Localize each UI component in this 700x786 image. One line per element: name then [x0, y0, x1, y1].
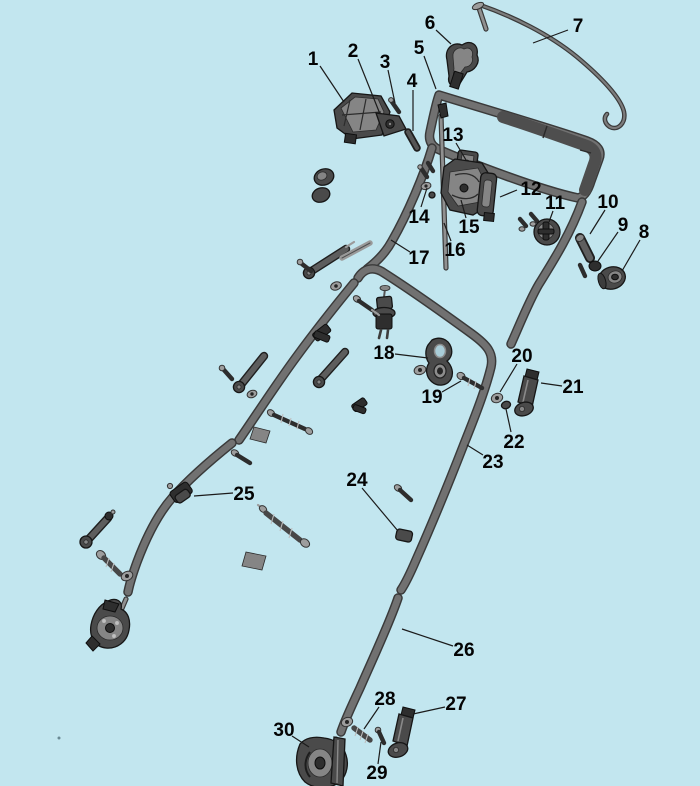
parts-diagram-canvas: 1234567891011121314151617181920212223242… — [0, 0, 700, 786]
part-callout-25: 25 — [233, 484, 255, 505]
part-callout-14: 14 — [408, 207, 430, 228]
part-callout-10: 10 — [597, 192, 618, 213]
part-callout-7: 7 — [573, 16, 584, 37]
part-callout-1: 1 — [308, 49, 319, 70]
pivot-bracket — [426, 338, 453, 385]
part-callout-19: 19 — [421, 387, 442, 408]
part-callout-24: 24 — [346, 470, 368, 491]
parts-diagram: 1234567891011121314151617181920212223242… — [0, 0, 700, 786]
part-callout-23: 23 — [482, 452, 503, 473]
part-callout-30: 30 — [273, 720, 294, 741]
stray-mark — [58, 737, 61, 740]
part-callout-18: 18 — [373, 343, 394, 364]
part-callout-2: 2 — [348, 41, 359, 62]
part-callout-11: 11 — [545, 193, 566, 214]
part-callout-9: 9 — [618, 215, 629, 236]
lock-nut — [589, 261, 601, 271]
part-callout-12: 12 — [520, 179, 541, 200]
part-callout-5: 5 — [414, 38, 425, 59]
part-callout-6: 6 — [425, 13, 436, 34]
part-callout-13: 13 — [442, 125, 463, 146]
part-callout-8: 8 — [639, 222, 650, 243]
part-callout-16: 16 — [444, 240, 465, 261]
part-callout-17: 17 — [408, 248, 429, 269]
part-callout-26: 26 — [453, 640, 474, 661]
part-callout-20: 20 — [511, 346, 532, 367]
part-callout-22: 22 — [503, 432, 524, 453]
part-callout-28: 28 — [374, 689, 395, 710]
part-callout-3: 3 — [380, 52, 391, 73]
part-callout-21: 21 — [562, 377, 584, 398]
part-callout-4: 4 — [407, 71, 418, 92]
part-callout-27: 27 — [445, 694, 466, 715]
part-callout-15: 15 — [458, 217, 480, 238]
part-callout-29: 29 — [366, 763, 387, 784]
